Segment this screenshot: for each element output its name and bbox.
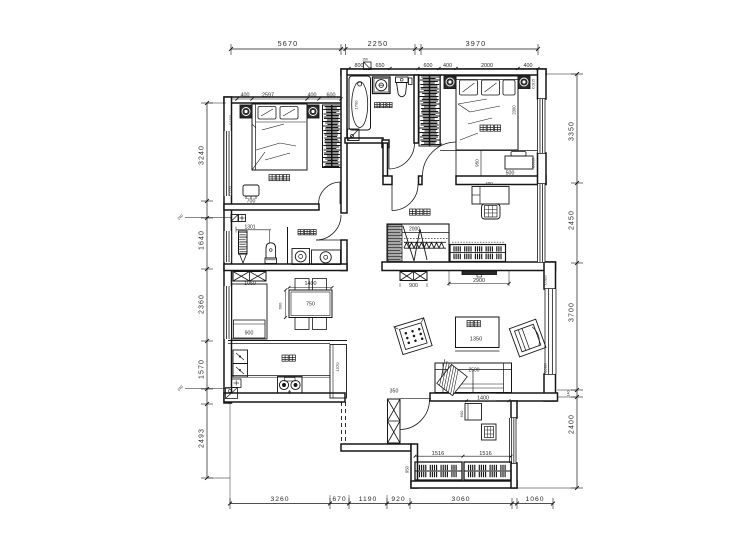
svg-text:3060: 3060	[451, 496, 470, 503]
svg-text:C0920: C0920	[544, 363, 548, 373]
svg-text:600: 600	[424, 63, 433, 69]
svg-text:900: 900	[245, 331, 254, 337]
svg-text:670: 670	[332, 496, 346, 503]
svg-text:600: 600	[327, 93, 336, 99]
svg-text:1350: 1350	[470, 337, 482, 343]
svg-text:400: 400	[241, 93, 250, 99]
svg-text:C0915: C0915	[532, 158, 536, 168]
svg-text:400: 400	[524, 63, 533, 69]
svg-text:950: 950	[475, 159, 480, 167]
svg-text:950: 950	[404, 465, 409, 473]
svg-text:150: 150	[362, 58, 368, 62]
svg-text:1516: 1516	[432, 451, 444, 457]
svg-text:400: 400	[308, 93, 317, 99]
svg-text:2000: 2000	[409, 227, 420, 233]
svg-text:920: 920	[391, 496, 405, 503]
svg-text:1700: 1700	[354, 100, 359, 110]
svg-text:1570: 1570	[335, 362, 340, 372]
svg-text:800: 800	[355, 63, 364, 69]
svg-text:3700: 3700	[569, 302, 576, 322]
svg-text:2597: 2597	[262, 93, 274, 99]
svg-text:900: 900	[409, 283, 418, 289]
svg-text:2450: 2450	[569, 210, 576, 230]
svg-text:600: 600	[278, 302, 283, 309]
svg-text:C0915: C0915	[532, 79, 536, 89]
svg-text:C0920: C0920	[544, 275, 548, 285]
svg-text:2250: 2250	[368, 39, 389, 48]
svg-text:2500: 2500	[468, 368, 479, 374]
svg-text:1060: 1060	[525, 496, 544, 503]
svg-text:2400: 2400	[569, 414, 576, 434]
svg-text:2000: 2000	[481, 63, 493, 69]
svg-text:1516: 1516	[479, 451, 491, 457]
svg-text:C1223: C1223	[229, 115, 233, 125]
svg-text:1570: 1570	[199, 359, 206, 379]
svg-text:750: 750	[306, 302, 315, 308]
svg-text:3970: 3970	[466, 39, 487, 48]
svg-text:500: 500	[506, 171, 515, 177]
svg-text:3240: 3240	[199, 145, 206, 165]
svg-text:350: 350	[390, 389, 399, 395]
svg-text:3350: 3350	[569, 121, 576, 141]
svg-text:140: 140	[567, 391, 571, 397]
svg-text:1400: 1400	[305, 281, 317, 287]
svg-text:5670: 5670	[278, 39, 299, 48]
svg-text:1190: 1190	[359, 496, 378, 503]
svg-text:700: 700	[247, 199, 256, 205]
svg-text:1640: 1640	[199, 230, 206, 250]
svg-text:400: 400	[443, 63, 452, 69]
svg-text:2900: 2900	[473, 278, 485, 284]
svg-text:1400: 1400	[477, 395, 489, 401]
svg-text:2493: 2493	[199, 428, 206, 448]
svg-text:2300: 2300	[512, 105, 517, 115]
svg-text:650: 650	[376, 63, 385, 69]
svg-text:2360: 2360	[199, 294, 206, 314]
svg-text:3260: 3260	[270, 496, 289, 503]
svg-text:600: 600	[459, 410, 464, 417]
svg-text:400: 400	[485, 181, 493, 186]
svg-text:C1223: C1223	[229, 186, 233, 196]
